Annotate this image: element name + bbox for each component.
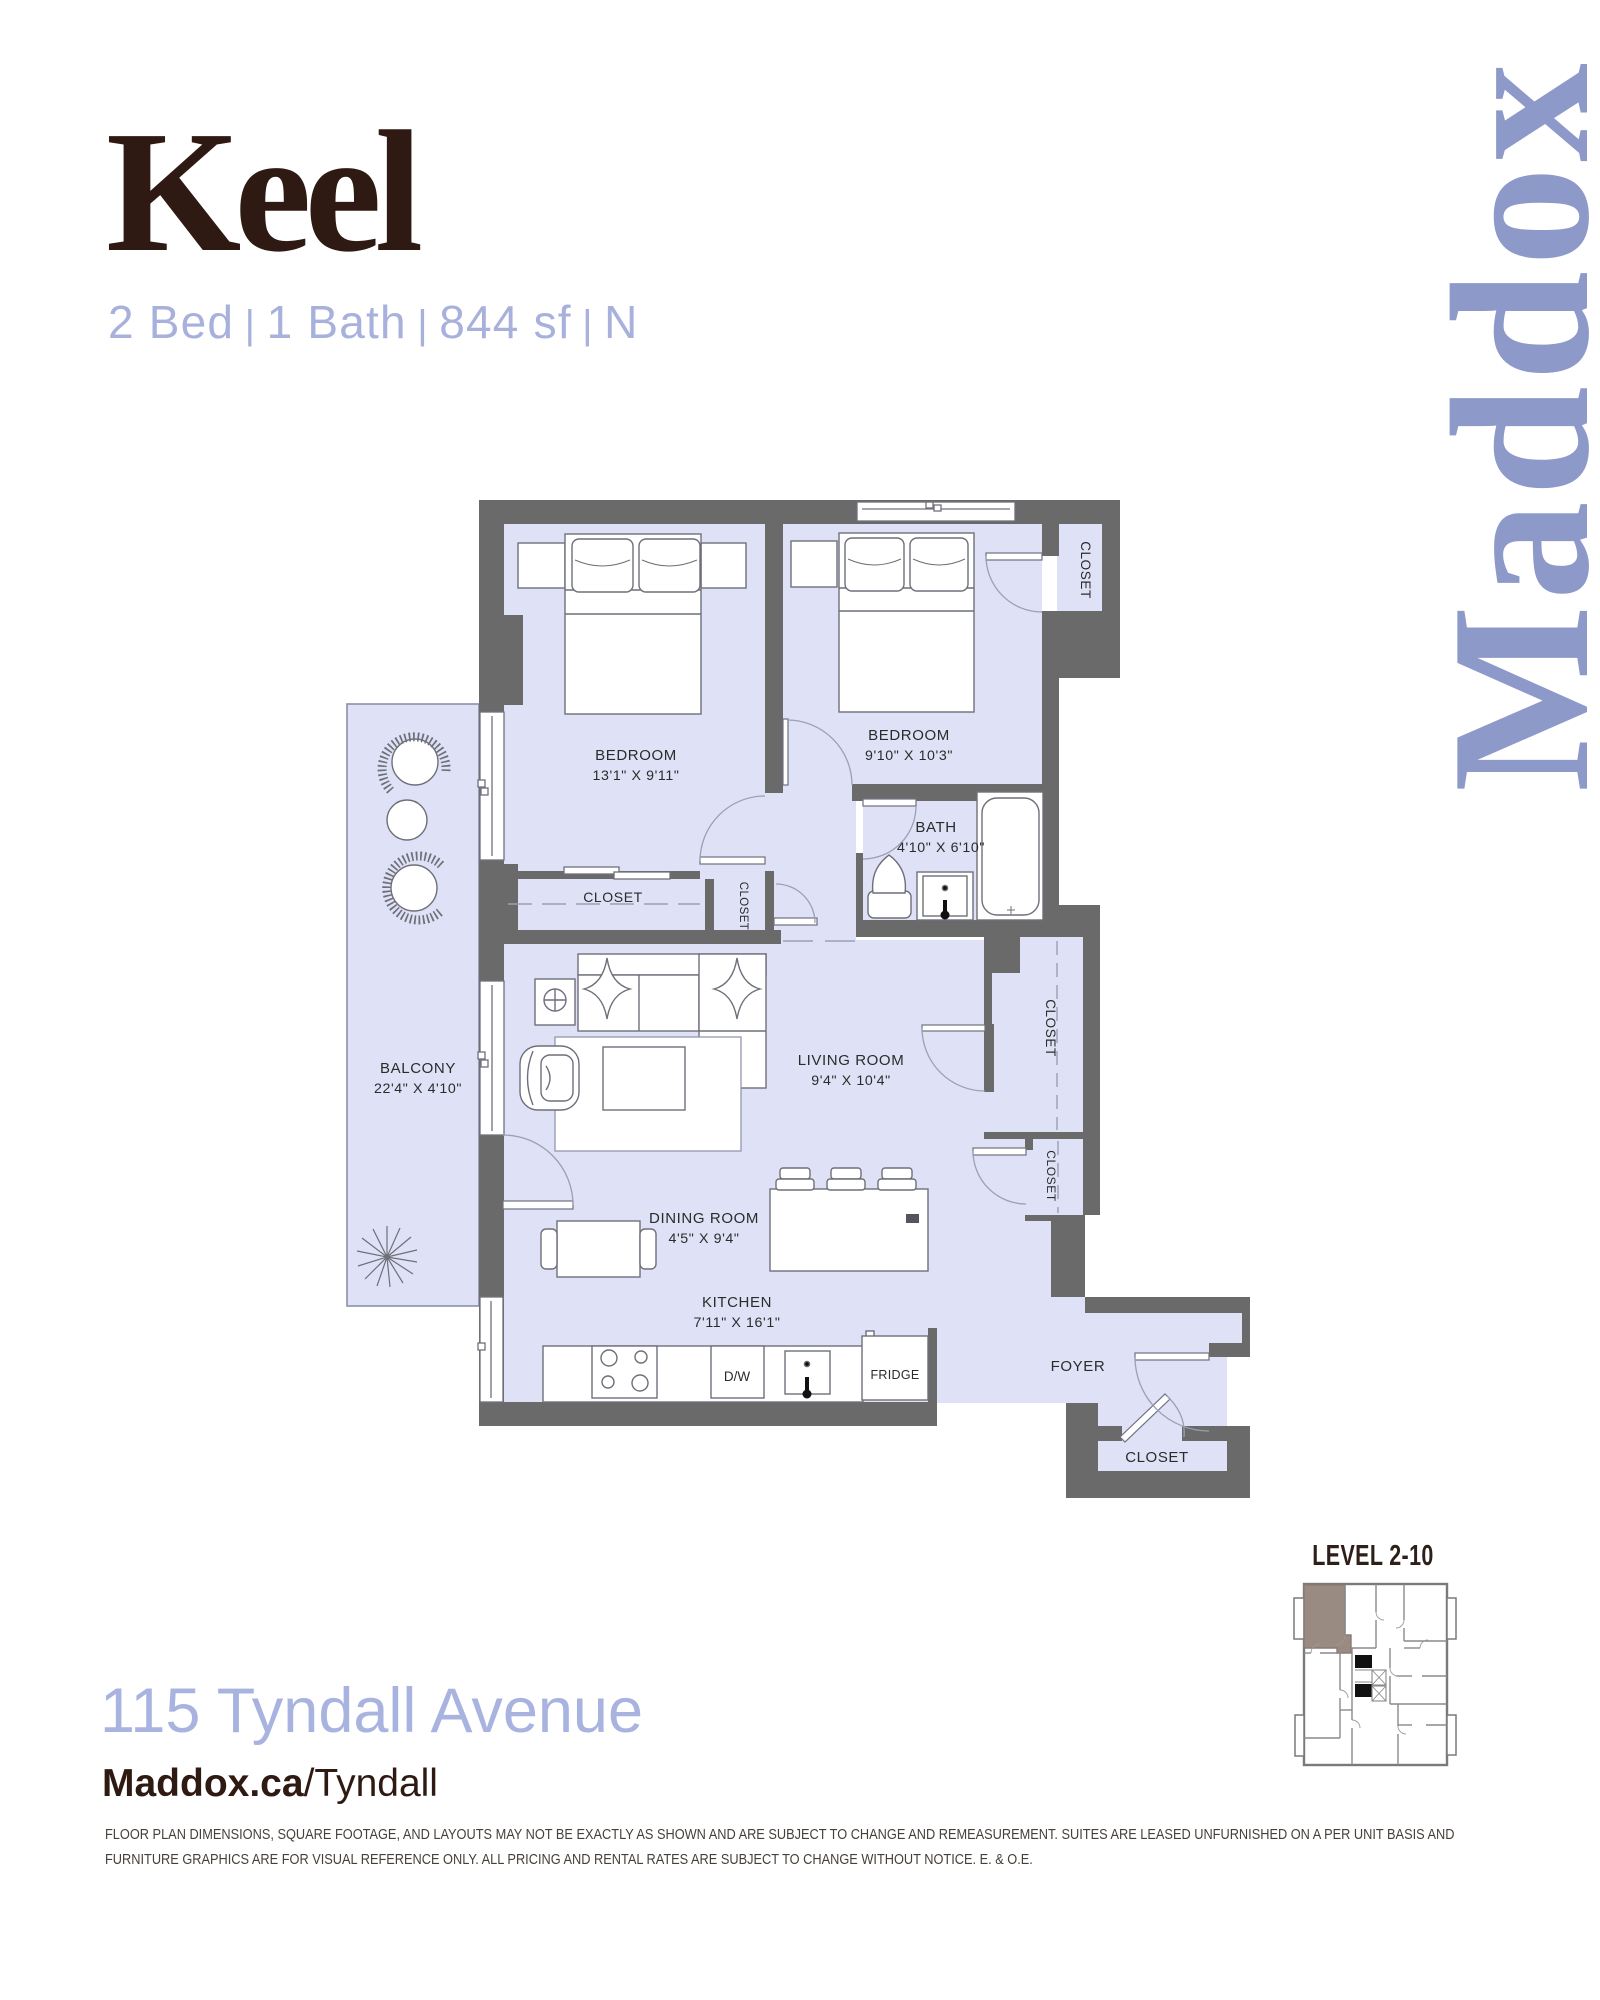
svg-text:13'1" X 9'11": 13'1" X 9'11" — [593, 768, 680, 784]
svg-text:4'5" X 9'4": 4'5" X 9'4" — [669, 1231, 740, 1247]
svg-text:22'4" X 4'10": 22'4" X 4'10" — [374, 1081, 462, 1097]
svg-text:CLOSET: CLOSET — [1044, 1150, 1058, 1202]
svg-text:9'10" X 10'3": 9'10" X 10'3" — [865, 748, 953, 764]
svg-text:CLOSET: CLOSET — [1078, 541, 1093, 599]
svg-text:BEDROOM: BEDROOM — [595, 747, 677, 764]
svg-text:BEDROOM: BEDROOM — [868, 727, 950, 744]
svg-text:9'4" X 10'4": 9'4" X 10'4" — [811, 1073, 891, 1089]
svg-text:BATH: BATH — [915, 819, 956, 836]
svg-text:FRIDGE: FRIDGE — [870, 1368, 919, 1382]
svg-text:D/W: D/W — [724, 1369, 751, 1384]
svg-text:4'10" X 6'10": 4'10" X 6'10" — [897, 840, 985, 856]
svg-text:KITCHEN: KITCHEN — [702, 1294, 772, 1311]
svg-text:CLOSET: CLOSET — [1125, 1449, 1189, 1466]
svg-text:CLOSET: CLOSET — [1043, 999, 1058, 1057]
svg-text:FOYER: FOYER — [1051, 1358, 1106, 1375]
svg-text:7'11" X 16'1": 7'11" X 16'1" — [694, 1315, 781, 1331]
svg-text:CLOSET: CLOSET — [737, 882, 749, 930]
svg-text:DINING ROOM: DINING ROOM — [649, 1210, 759, 1227]
svg-text:CLOSET: CLOSET — [583, 889, 643, 905]
svg-text:LIVING ROOM: LIVING ROOM — [798, 1052, 905, 1069]
svg-text:BALCONY: BALCONY — [380, 1060, 456, 1077]
